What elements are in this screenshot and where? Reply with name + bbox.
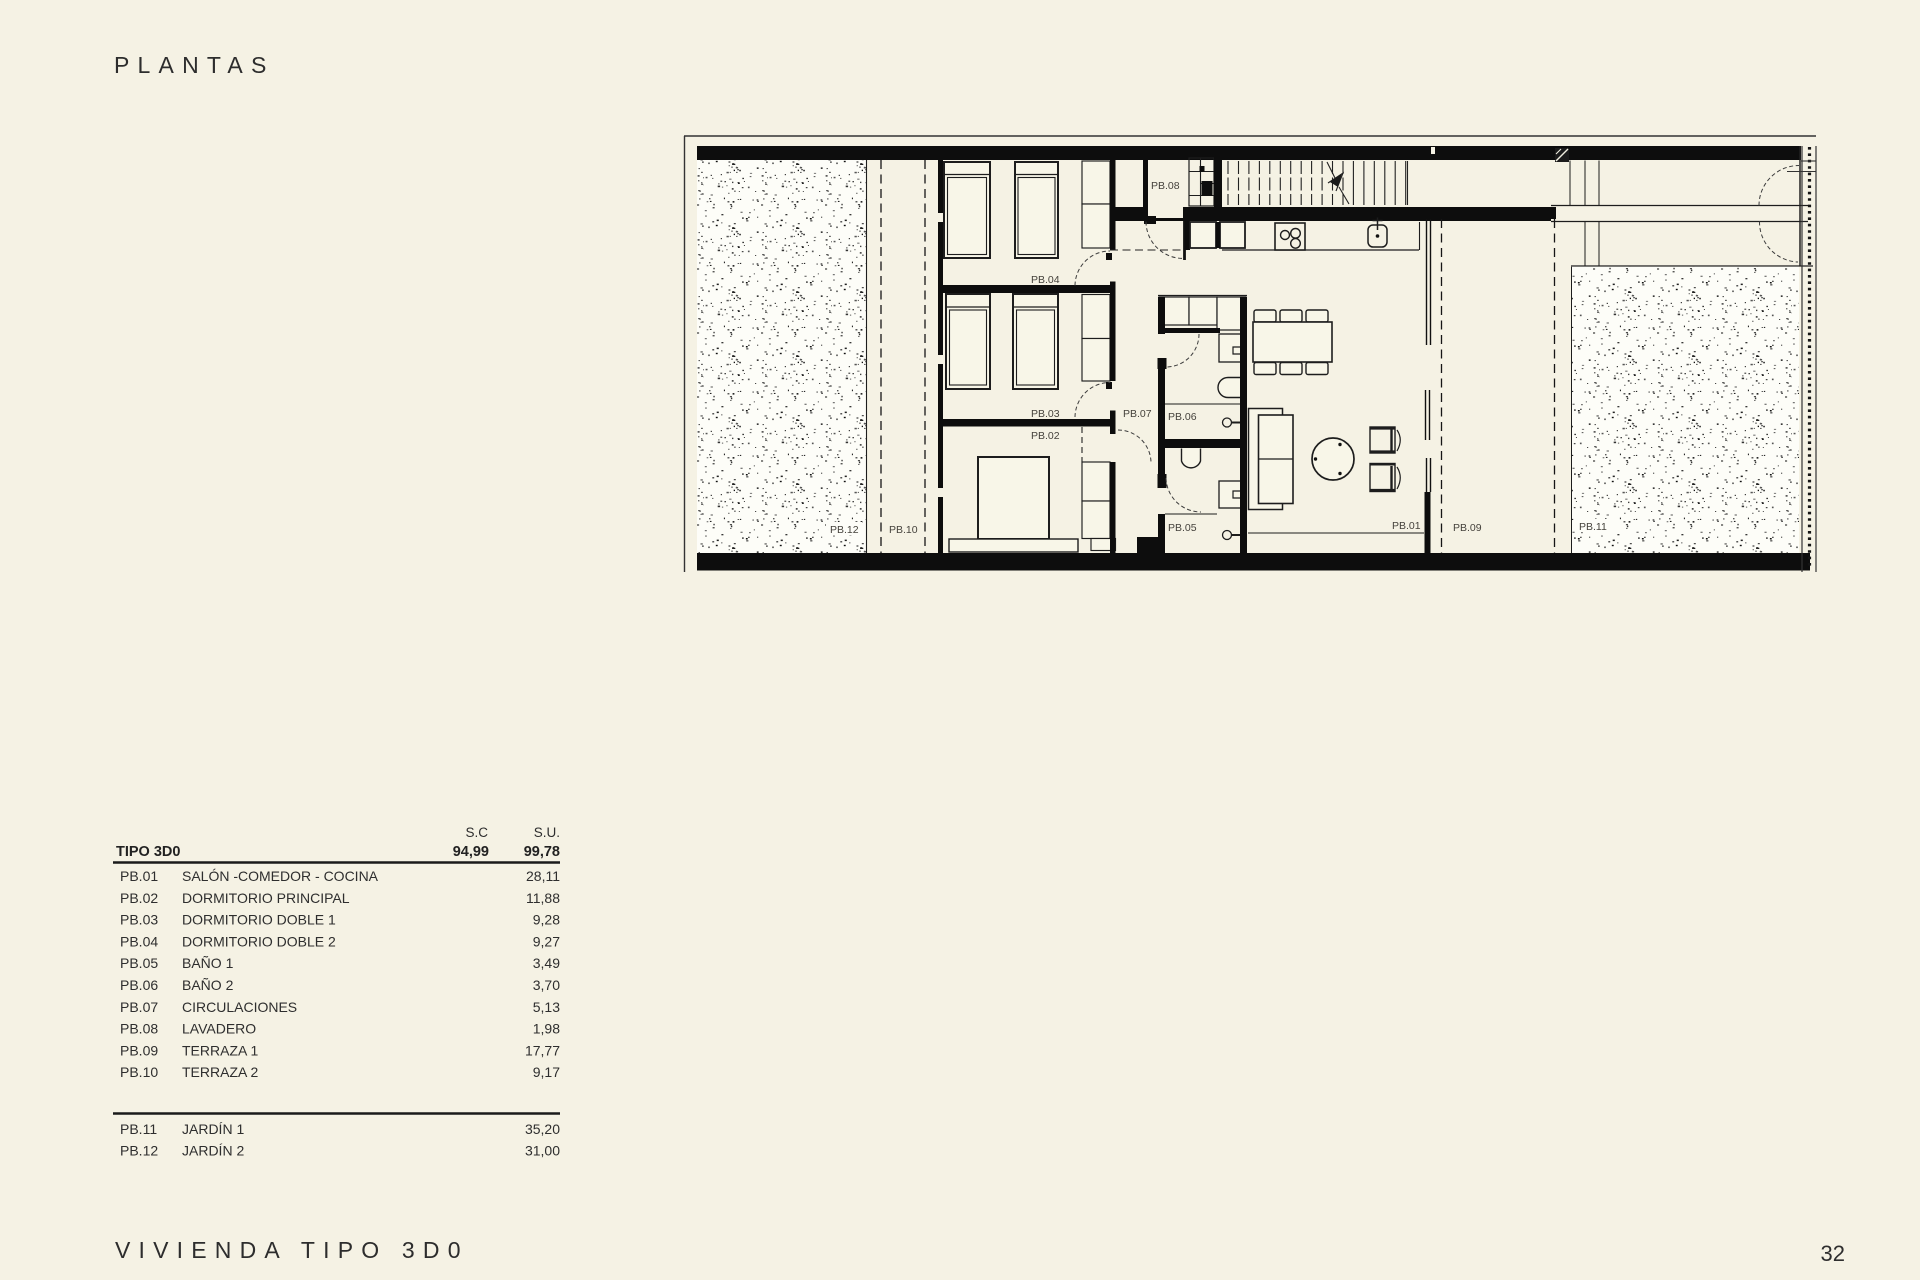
svg-text:PB.02: PB.02 <box>120 890 158 906</box>
svg-text:PLANTAS: PLANTAS <box>114 52 275 78</box>
svg-text:S.U.: S.U. <box>534 825 560 840</box>
svg-text:28,11: 28,11 <box>526 868 560 884</box>
svg-text:PB.09: PB.09 <box>1453 522 1482 534</box>
svg-text:31,00: 31,00 <box>525 1143 560 1159</box>
svg-text:PB.12: PB.12 <box>120 1143 158 1159</box>
svg-text:PB.10: PB.10 <box>889 524 918 536</box>
svg-text:PB.12: PB.12 <box>830 524 859 536</box>
svg-text:94,99: 94,99 <box>453 844 489 860</box>
svg-text:DORMITORIO PRINCIPAL: DORMITORIO PRINCIPAL <box>182 890 350 906</box>
svg-text:PB.07: PB.07 <box>120 999 158 1015</box>
svg-text:PB.07: PB.07 <box>1123 408 1152 420</box>
svg-text:32: 32 <box>1821 1241 1845 1266</box>
svg-text:JARDÍN 2: JARDÍN 2 <box>182 1143 244 1159</box>
svg-text:PB.04: PB.04 <box>1031 274 1060 286</box>
svg-text:TERRAZA 2: TERRAZA 2 <box>182 1064 258 1080</box>
svg-text:3,70: 3,70 <box>533 977 560 993</box>
svg-text:PB.01: PB.01 <box>1392 520 1421 532</box>
svg-text:17,77: 17,77 <box>525 1042 560 1058</box>
svg-text:TIPO 3D0: TIPO 3D0 <box>116 844 180 860</box>
svg-text:DORMITORIO DOBLE 1: DORMITORIO DOBLE 1 <box>182 912 336 928</box>
svg-text:9,17: 9,17 <box>533 1064 560 1080</box>
svg-text:PB.06: PB.06 <box>120 977 158 993</box>
svg-text:PB.11: PB.11 <box>1579 521 1607 533</box>
svg-text:PB.04: PB.04 <box>120 933 158 949</box>
svg-text:PB.03: PB.03 <box>120 912 158 928</box>
svg-text:BAÑO 1: BAÑO 1 <box>182 955 234 971</box>
svg-text:35,20: 35,20 <box>525 1121 560 1137</box>
svg-text:JARDÍN 1: JARDÍN 1 <box>182 1121 244 1137</box>
svg-text:LAVADERO: LAVADERO <box>182 1021 256 1037</box>
svg-text:99,78: 99,78 <box>524 844 560 860</box>
svg-text:PB.06: PB.06 <box>1168 411 1197 423</box>
svg-text:PB.11: PB.11 <box>120 1121 157 1137</box>
svg-text:PB.08: PB.08 <box>1151 180 1180 192</box>
svg-text:S.C: S.C <box>465 825 488 840</box>
svg-text:VIVIENDA TIPO 3D0: VIVIENDA TIPO 3D0 <box>115 1237 469 1263</box>
svg-text:PB.05: PB.05 <box>120 955 158 971</box>
svg-text:5,13: 5,13 <box>533 999 560 1015</box>
svg-text:11,88: 11,88 <box>526 890 560 906</box>
svg-text:SALÓN -COMEDOR - COCINA: SALÓN -COMEDOR - COCINA <box>182 868 379 884</box>
svg-text:3,49: 3,49 <box>533 955 560 971</box>
svg-text:9,27: 9,27 <box>533 933 560 949</box>
svg-text:DORMITORIO DOBLE 2: DORMITORIO DOBLE 2 <box>182 933 336 949</box>
svg-text:9,28: 9,28 <box>533 912 560 928</box>
svg-text:PB.09: PB.09 <box>120 1042 158 1058</box>
svg-text:TERRAZA 1: TERRAZA 1 <box>182 1042 258 1058</box>
svg-text:CIRCULACIONES: CIRCULACIONES <box>182 999 297 1015</box>
svg-text:PB.01: PB.01 <box>120 868 158 884</box>
svg-text:PB.08: PB.08 <box>120 1021 158 1037</box>
svg-text:BAÑO 2: BAÑO 2 <box>182 977 234 993</box>
svg-text:PB.02: PB.02 <box>1031 430 1060 442</box>
svg-text:1,98: 1,98 <box>533 1021 560 1037</box>
svg-text:PB.03: PB.03 <box>1031 408 1060 420</box>
svg-text:PB.05: PB.05 <box>1168 522 1197 534</box>
svg-text:PB.10: PB.10 <box>120 1064 158 1080</box>
